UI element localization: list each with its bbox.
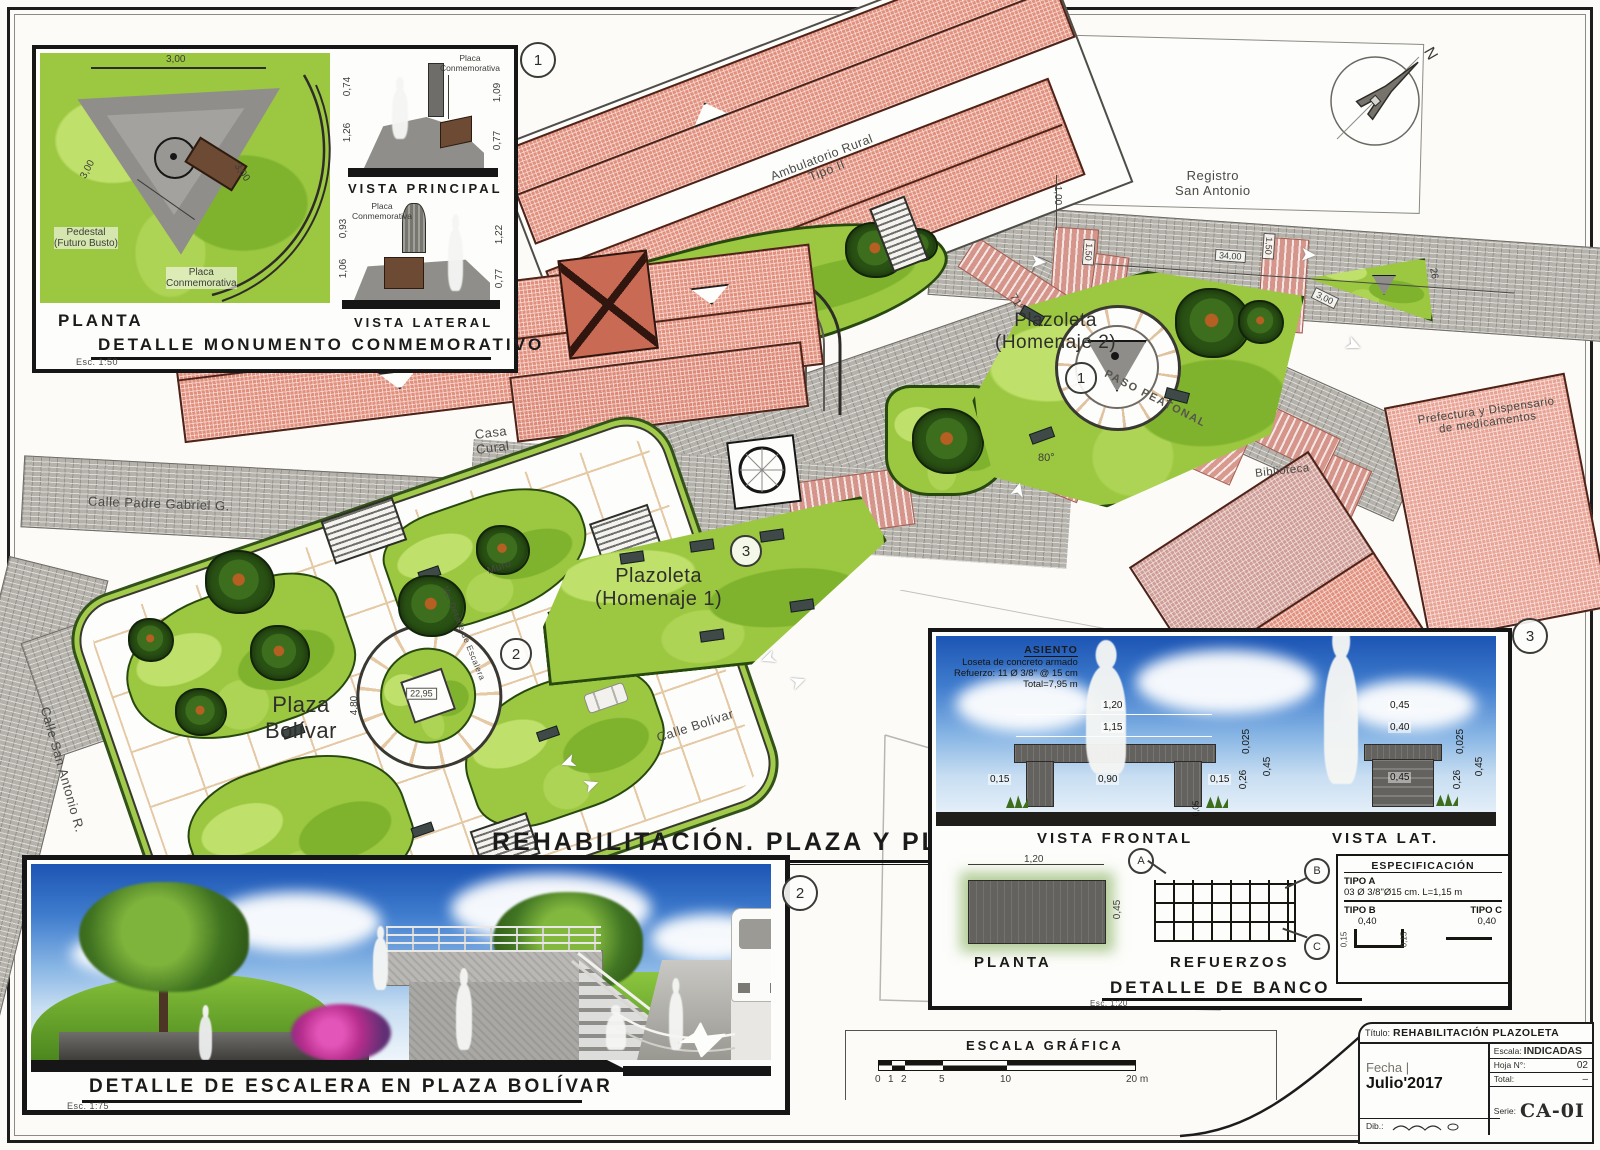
serie-value: CA-0I	[1520, 1100, 1585, 1122]
detail-marker-2: 2	[782, 875, 818, 911]
bench-panel: 1,20 1,15 0,90 0,15 0,15 0,025 0,26 0,45…	[928, 628, 1512, 1010]
placa-lateral-label: PlacaConmemorativa	[352, 201, 412, 221]
drawing-sheet: RegistroSan Antonio N Ambulatorio RuralT…	[0, 0, 1600, 1150]
plan-marker-3: 3	[730, 535, 762, 567]
plan-marker-1: 1	[1065, 362, 1097, 394]
vista-lat-caption: VISTA LAT.	[1332, 830, 1439, 847]
detail-marker-1: 1	[520, 42, 556, 78]
tree	[1238, 300, 1284, 344]
plan-dim-top: 3,00	[166, 54, 185, 65]
plaza-bolivar-label: PlazaBolívar	[265, 692, 337, 744]
vista-frontal-caption: VISTA FRONTAL	[1037, 830, 1193, 847]
bench-panel-title: DETALLE DE BANCO	[1110, 978, 1331, 998]
street-dim: 34,00	[1215, 249, 1246, 263]
planta-caption: PLANTA	[58, 311, 144, 331]
plan-marker-2: 2	[500, 638, 532, 670]
stair-panel-scale: Esc. 1:75	[67, 1101, 109, 1111]
placa-plan-label: PlacaConmemorativa	[166, 267, 237, 289]
titulo-value: REHABILITACIÓN PLAZOLETA	[1393, 1027, 1559, 1039]
tree	[912, 408, 984, 474]
dim-100: 1,00	[1052, 186, 1063, 205]
hoja-value: 02	[1577, 1060, 1588, 1071]
refuerzos-grid	[1154, 880, 1296, 942]
refuerzos-caption: REFUERZOS	[1170, 954, 1290, 971]
sitting-figure	[1086, 666, 1126, 774]
titulo-label: Título:	[1365, 1028, 1390, 1038]
placa-principal-label: PlacaConmemorativa	[440, 53, 500, 73]
signature	[1391, 1121, 1461, 1133]
street-dim: 1,50	[1082, 239, 1096, 265]
pedestal-label: Pedestal(Futuro Busto)	[54, 227, 118, 249]
serie-label: Serie:	[1494, 1106, 1516, 1116]
monument-panel-title: DETALLE MONUMENTO CONMEMORATIVO	[98, 335, 544, 355]
bench-panel-scale: Esc. 1:20	[1090, 999, 1128, 1008]
plaza-dim: 4,80	[349, 696, 360, 715]
title-block-swoosh	[1180, 1010, 1380, 1142]
traffic-arrow-icon: ➤	[1299, 244, 1317, 265]
north-arrow-icon: N	[1315, 35, 1445, 155]
dib-label: Dib.:	[1366, 1121, 1383, 1133]
especificacion-box: ESPECIFICACIÓN TIPO A 03 Ø 3/8"Ø15 cm. L…	[1336, 854, 1510, 984]
detail-marker-3: 3	[1512, 618, 1548, 654]
tree	[128, 618, 174, 662]
angle-80: 80°	[1038, 452, 1055, 464]
traffic-arrow-icon: ➤	[1029, 251, 1047, 272]
stair-panel: DETALLE DE ESCALERA EN PLAZA BOLÍVAR Esc…	[22, 855, 790, 1115]
stair-panel-title: DETALLE DE ESCALERA EN PLAZA BOLÍVAR	[89, 1076, 613, 1098]
callout-b: B	[1304, 858, 1330, 884]
mini-dim: 26	[1427, 267, 1440, 280]
standing-figure	[1324, 654, 1358, 784]
monument-panel-scale: Esc. 1:50	[76, 357, 118, 367]
bench-planta	[968, 880, 1106, 944]
plazoleta-homenaje-2-label: Plazoleta(Homenaje 2)	[995, 310, 1116, 354]
total-label: Total:	[1494, 1074, 1514, 1085]
bus	[731, 908, 771, 1002]
scale-bar-segments	[878, 1060, 1136, 1071]
total-value: –	[1582, 1074, 1588, 1085]
escala-label: Escala:	[1494, 1046, 1522, 1056]
vista-lateral-caption: VISTA LATERAL	[354, 315, 493, 330]
street-dim: 1,50	[1262, 233, 1276, 259]
asiento-annotation: ASIENTO Loseta de concreto armado Refuer…	[954, 644, 1078, 690]
svg-text:N: N	[1420, 45, 1441, 64]
rose-window-circle	[736, 444, 788, 496]
fecha-label: Fecha |	[1366, 1060, 1409, 1075]
registro-label: RegistroSan Antonio	[1175, 168, 1251, 198]
tree	[250, 625, 310, 681]
fecha-value: Julio'2017	[1366, 1075, 1443, 1092]
title-block: Título: REHABILITACIÓN PLAZOLETA Fecha |…	[1358, 1022, 1594, 1144]
vista-principal-caption: VISTA PRINCIPAL	[348, 181, 503, 196]
bench-planta-caption: PLANTA	[974, 954, 1052, 971]
escala-value: INDICADAS	[1524, 1045, 1582, 1057]
casa-cural-label: CasaCural	[473, 423, 510, 457]
church-tower	[557, 249, 659, 359]
hoja-label: Hoja N°:	[1494, 1060, 1526, 1071]
tree	[175, 688, 227, 736]
plazoleta-homenaje-1-label: Plazoleta(Homenaje 1)	[595, 565, 722, 611]
monument-panel: 3,00 3,00 3,00 Pedestal(Futuro Busto) Pl…	[32, 45, 518, 373]
vista-principal-view: 0,74 1,26 1,09 0,77 PlacaConmemorativa	[336, 57, 508, 177]
scale-bar-title: ESCALA GRÁFICA	[966, 1038, 1124, 1053]
callout-c: C	[1304, 934, 1330, 960]
tree	[205, 550, 275, 614]
vista-lateral-view: 0,93 1,06 1,22 0,77 PlacaConmemorativa	[336, 201, 508, 309]
plaza-elevation: 22,95	[406, 688, 437, 700]
